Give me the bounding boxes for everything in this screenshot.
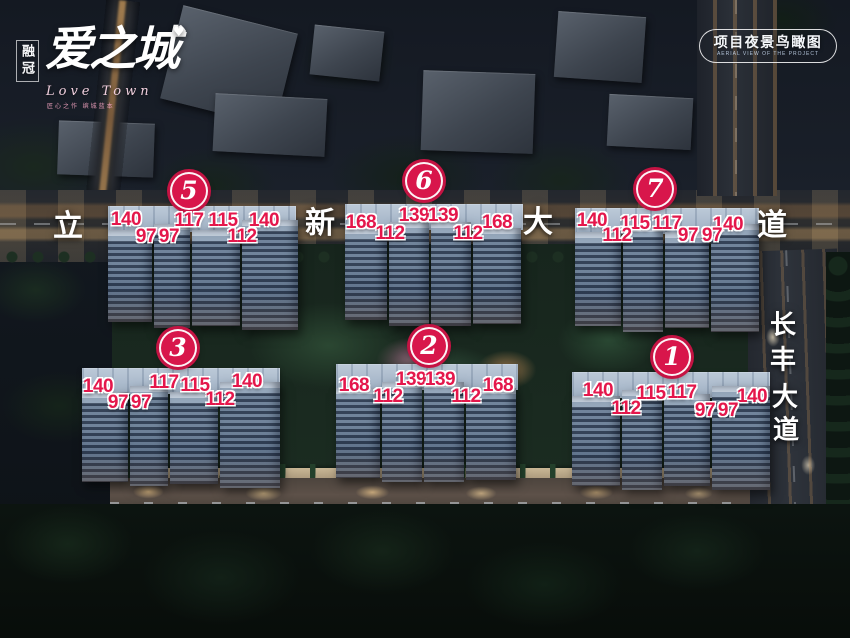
unit-area-label: 97 [131, 392, 151, 414]
unit-area-label: 97 [702, 225, 722, 247]
road-name-char: 大 [772, 377, 798, 414]
unit-area-label: 112 [602, 225, 631, 247]
building-number: 3 [169, 335, 186, 360]
south-forest [0, 504, 850, 638]
unit-area-label: 112 [205, 389, 234, 411]
building-number: 7 [646, 176, 663, 201]
unit-area-label: 112 [453, 223, 482, 245]
unit-area-label: 112 [375, 223, 404, 245]
building-number-badge-2: 2 [410, 327, 448, 365]
city-block [421, 70, 536, 154]
heart-icon: ♥ [173, 25, 182, 40]
unit-area-label: 115 [636, 383, 665, 405]
unit-area-label: 112 [227, 226, 256, 248]
unit-area-label: 117 [149, 372, 178, 394]
view-title-badge: 项目夜景鸟瞰图 AERIAL VIEW OF THE PROJECT [699, 29, 837, 63]
building-cluster-1 [570, 356, 775, 490]
view-subtitle: AERIAL VIEW OF THE PROJECT [717, 51, 819, 57]
unit-area-label: 112 [373, 386, 402, 408]
unit-area-label: 97 [108, 392, 128, 414]
building-number-badge-6: 6 [405, 162, 443, 200]
unit-area-label: 168 [483, 375, 513, 397]
unit-area-label: 97 [678, 225, 698, 247]
road-name-char: 立 [53, 201, 83, 245]
view-title: 项目夜景鸟瞰图 [714, 35, 823, 50]
unit-area-label: 97 [695, 400, 715, 422]
city-block [554, 11, 646, 83]
building-number-badge-1: 1 [653, 338, 691, 376]
unit-area-label: 117 [667, 382, 696, 404]
unit-area-label: 168 [346, 212, 376, 234]
road-name-char: 大 [523, 197, 553, 241]
unit-area-label: 140 [232, 371, 262, 393]
city-block [607, 94, 694, 150]
building-number-badge-7: 7 [636, 170, 674, 208]
project-tagline: 匠心之作 缤城蓝本 [47, 101, 196, 110]
building-number: 1 [663, 344, 680, 369]
building-number: 2 [420, 333, 437, 358]
project-logo: 融冠 爱之城♥ Love Town 匠心之作 缤城蓝本 [16, 26, 196, 110]
brand-name: 融冠 [16, 40, 39, 82]
road-name-char: 道 [773, 410, 799, 447]
unit-area-label: 140 [737, 386, 767, 408]
road-name-char: 丰 [770, 340, 796, 377]
building-number: 5 [180, 178, 197, 203]
road-name-char: 道 [757, 200, 787, 244]
unit-area-label: 112 [451, 386, 480, 408]
building-number-badge-3: 3 [159, 329, 197, 367]
unit-area-label: 168 [339, 375, 369, 397]
unit-area-label: 140 [583, 380, 613, 402]
project-name-english: Love Town [46, 84, 196, 99]
city-block [310, 24, 385, 81]
unit-area-label: 112 [611, 398, 640, 420]
unit-area-label: 168 [482, 212, 512, 234]
project-name: 爱之城♥ [45, 26, 182, 73]
road-name-char: 新 [305, 198, 335, 242]
building-number-badge-5: 5 [170, 172, 208, 210]
building-number: 6 [415, 168, 432, 193]
unit-area-label: 97 [159, 226, 179, 248]
night-aerial-rendering: 立新大道长丰大道51401171151409797112616813913916… [0, 0, 850, 638]
unit-area-label: 97 [136, 226, 156, 248]
unit-area-label: 97 [718, 400, 738, 422]
road-name-char: 长 [770, 305, 796, 342]
city-block [213, 93, 328, 157]
